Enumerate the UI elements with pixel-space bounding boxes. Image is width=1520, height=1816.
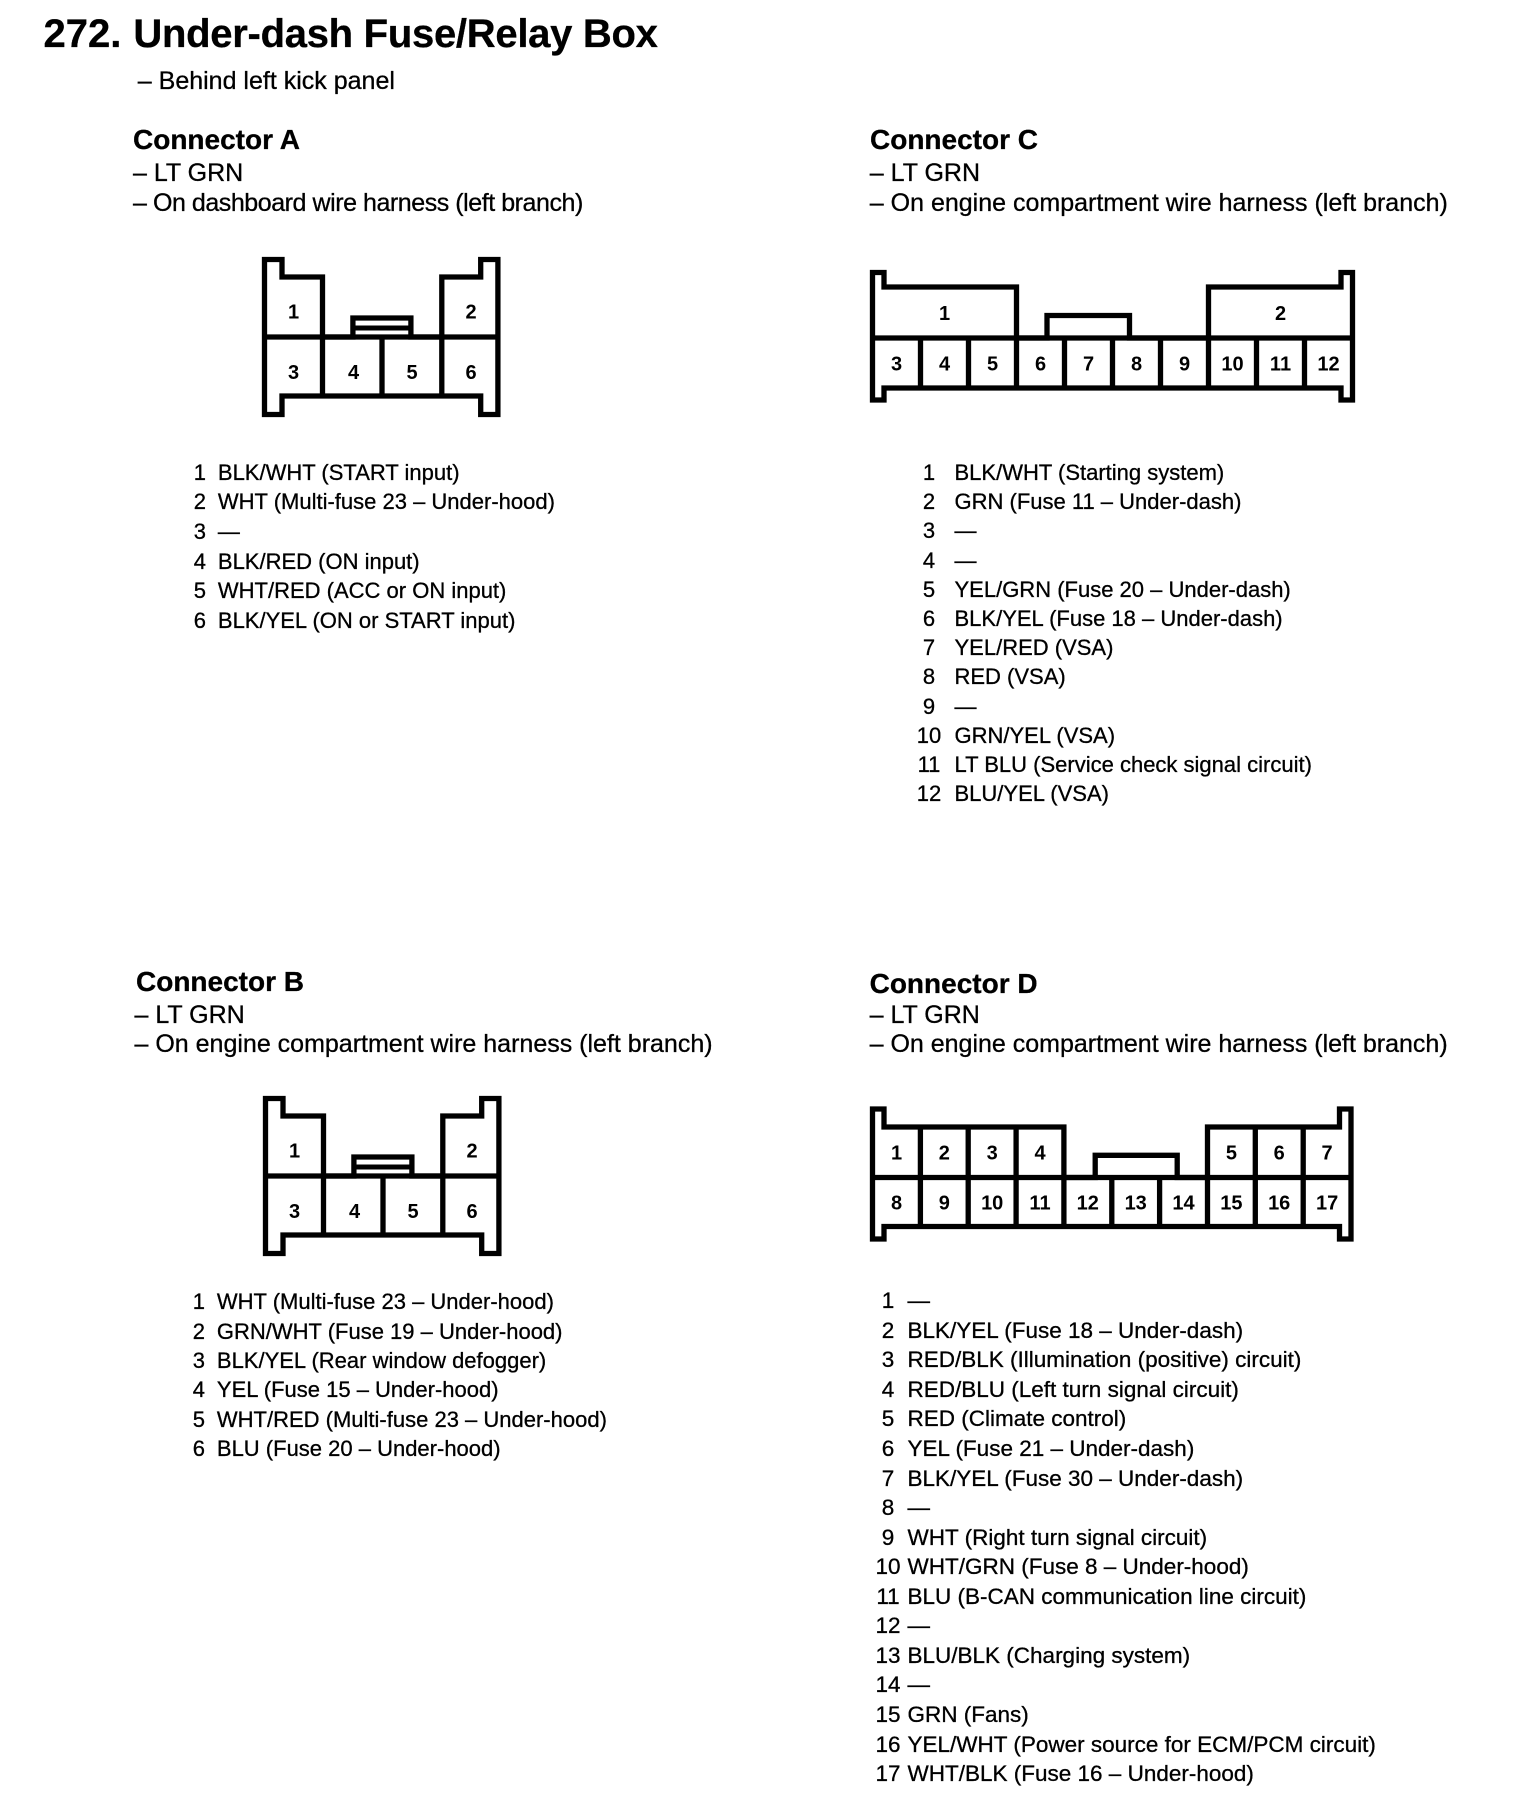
svg-text:4: 4 [1034,1143,1046,1165]
svg-text:3: 3 [288,362,299,384]
svg-text:8: 8 [891,1193,902,1215]
svg-text:3: 3 [891,354,902,376]
svg-text:4: 4 [348,362,360,384]
svg-text:10: 10 [981,1193,1003,1215]
svg-text:7: 7 [1322,1143,1333,1165]
svg-text:3: 3 [987,1143,998,1165]
svg-text:12: 12 [1077,1193,1099,1215]
svg-text:1: 1 [288,302,299,324]
svg-text:6: 6 [1274,1143,1285,1165]
svg-text:6: 6 [465,362,476,384]
svg-text:12: 12 [1317,354,1339,376]
svg-text:14: 14 [1172,1193,1195,1215]
svg-text:2: 2 [466,1141,477,1163]
svg-text:5: 5 [406,362,417,384]
svg-text:1: 1 [939,303,950,325]
svg-text:3: 3 [289,1201,300,1223]
svg-text:6: 6 [1035,354,1046,376]
svg-text:8: 8 [1131,354,1142,376]
svg-text:2: 2 [939,1143,950,1165]
svg-text:7: 7 [1083,354,1094,376]
svg-text:5: 5 [987,354,998,376]
svg-text:5: 5 [407,1201,418,1223]
svg-text:10: 10 [1221,354,1243,376]
svg-text:16: 16 [1268,1193,1290,1215]
svg-text:2: 2 [465,302,476,324]
svg-text:4: 4 [939,354,951,376]
svg-text:9: 9 [939,1193,950,1215]
svg-text:1: 1 [891,1143,902,1165]
svg-text:2: 2 [1275,303,1286,325]
svg-text:5: 5 [1226,1143,1237,1165]
svg-text:1: 1 [289,1141,300,1163]
svg-text:17: 17 [1316,1193,1338,1215]
svg-text:6: 6 [466,1201,477,1223]
svg-text:9: 9 [1179,354,1190,376]
svg-text:11: 11 [1270,354,1291,376]
svg-text:11: 11 [1029,1193,1050,1215]
svg-text:4: 4 [349,1201,361,1223]
svg-text:15: 15 [1220,1193,1242,1215]
svg-text:13: 13 [1125,1193,1147,1215]
